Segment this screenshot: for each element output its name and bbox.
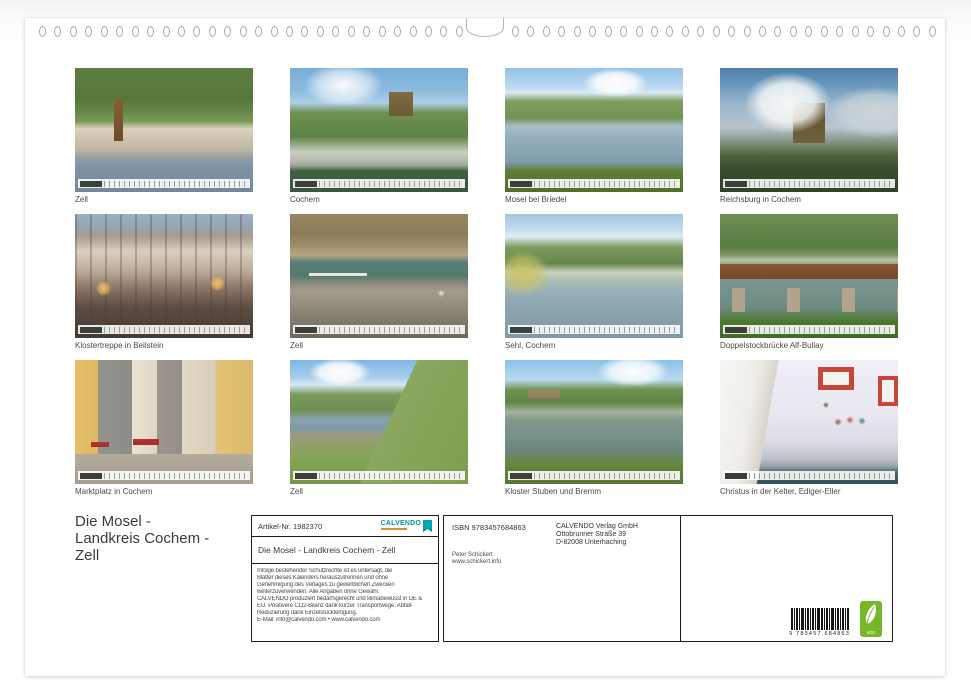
isbn-publisher-box: ISBN 9783457684863 CALVENDO Verlag GmbH … xyxy=(443,515,893,642)
thumbnail-zell-3: Zell xyxy=(290,360,468,506)
photo-sehl-river xyxy=(505,214,683,338)
binding-hole xyxy=(666,26,673,37)
binding-hole xyxy=(558,26,565,37)
binding-hole xyxy=(39,26,46,37)
binding-hole xyxy=(363,26,370,37)
thumbnail-bruecke: Doppelstockbrücke Alf-Bullay xyxy=(720,214,898,360)
photo-zell-aerial xyxy=(290,214,468,338)
binding-hole xyxy=(394,26,401,37)
mini-days-row xyxy=(749,181,893,187)
thumbnail-caption: Marktplatz in Cochem xyxy=(75,487,253,496)
mini-month-label xyxy=(510,473,532,479)
publisher-line: D-82008 Unterhaching xyxy=(556,539,638,547)
thumbnail-kelter: Christus in der Kelter, Ediger-Eller xyxy=(720,360,898,506)
calendar-title-row: Die Mosel - Landkreis Cochem - Zell xyxy=(252,537,438,564)
eco-leaf-icon xyxy=(862,603,880,629)
binding-hole xyxy=(147,26,154,37)
thumbnail-caption: Mosel bei Briedel xyxy=(505,195,683,204)
binding-hole xyxy=(456,26,463,37)
mini-days-row xyxy=(319,473,463,479)
binding-hole xyxy=(116,26,123,37)
publisher-line: CALVENDO Verlag GmbH xyxy=(556,523,638,531)
mini-calendar-strip xyxy=(723,325,895,334)
publisher-line: Ottobrunner Straße 39 xyxy=(556,531,638,539)
binding-hole xyxy=(163,26,170,37)
mini-days-row xyxy=(104,327,248,333)
legal-line: weiterzuverwenden. Alle Angaben ohne Gew… xyxy=(257,589,433,596)
binding-hole xyxy=(209,26,216,37)
thumbnail-cochem: Cochem xyxy=(290,68,468,214)
binding-hole xyxy=(132,26,139,37)
calendar-title-line: Die Mosel - xyxy=(75,513,250,530)
binding-hole xyxy=(317,26,324,37)
mini-days-row xyxy=(319,327,463,333)
eco-label: eco xyxy=(860,631,882,636)
mini-month-label xyxy=(295,327,317,333)
publisher-pane: ISBN 9783457684863 CALVENDO Verlag GmbH … xyxy=(444,516,681,641)
binding-hole xyxy=(512,26,519,37)
photo-river-reflection xyxy=(505,68,683,192)
mini-month-label xyxy=(510,327,532,333)
binding-hole xyxy=(636,26,643,37)
photographer-website: www.schickert.info xyxy=(452,559,501,566)
binding-hole xyxy=(883,26,890,37)
binding-hole xyxy=(651,26,658,37)
binding-hole xyxy=(178,26,185,37)
photo-reichsburg-clouds xyxy=(720,68,898,192)
photo-cochem-castle-town xyxy=(290,68,468,192)
binding-hole xyxy=(790,26,797,37)
mini-month-label xyxy=(80,181,102,187)
mini-calendar-strip xyxy=(293,471,465,480)
photo-double-deck-bridge xyxy=(720,214,898,338)
binding-hole xyxy=(852,26,859,37)
binding-hole xyxy=(527,26,534,37)
mini-month-label xyxy=(80,473,102,479)
mini-month-label xyxy=(295,181,317,187)
binding-hole xyxy=(744,26,751,37)
thumbnail-caption: Doppelstockbrücke Alf-Bullay xyxy=(720,341,898,350)
mini-calendar-strip xyxy=(723,179,895,188)
binding-hole xyxy=(286,26,293,37)
thumbnail-sehl: Sehl, Cochem xyxy=(505,214,683,360)
thumbnail-caption: Christus in der Kelter, Ediger-Eller xyxy=(720,487,898,496)
thumbnail-grid: Zell Cochem Mosel bei Briedel Reichsburg… xyxy=(75,68,898,506)
thumbnail-caption: Zell xyxy=(75,195,253,204)
binding-hole xyxy=(867,26,874,37)
thumbnail-briedel: Mosel bei Briedel xyxy=(505,68,683,214)
mini-calendar-strip xyxy=(508,179,680,188)
binding-hole xyxy=(728,26,735,37)
binding-hole xyxy=(821,26,828,37)
photo-zell-waterfront xyxy=(75,68,253,192)
binding-holes-left xyxy=(39,25,463,37)
thumbnail-caption: Klostertreppe in Beilstein xyxy=(75,341,253,350)
thumbnail-reichsburg: Reichsburg in Cochem xyxy=(720,68,898,214)
legal-line: Reduzierung dank Einzelstückfertigung. xyxy=(257,610,433,617)
mini-calendar-strip xyxy=(78,471,250,480)
barcode: 9 783457 684863 xyxy=(789,608,850,637)
photo-kloster-stuben xyxy=(505,360,683,484)
mini-month-label xyxy=(510,181,532,187)
legal-text: Infolge bestehender Schutzrechte ist es … xyxy=(252,564,438,624)
binding-hole xyxy=(240,26,247,37)
binding-hole xyxy=(913,26,920,37)
calendar-title-line: Landkreis Cochem - xyxy=(75,530,250,547)
photo-market-square xyxy=(75,360,253,484)
binding-hole xyxy=(224,26,231,37)
calendar-title-line: Zell xyxy=(75,547,250,564)
mini-days-row xyxy=(319,181,463,187)
legal-line: EU. Positivere CO2-Bilanz dank kurzer Tr… xyxy=(257,603,433,610)
photo-monastery-stairs-evening xyxy=(75,214,253,338)
mini-month-label xyxy=(295,473,317,479)
binding-hole xyxy=(85,26,92,37)
product-info-box: Artikel-Nr. 1982370 CALVENDO Die Mosel -… xyxy=(251,515,439,642)
thumbnail-caption: Zell xyxy=(290,487,468,496)
mini-calendar-strip xyxy=(508,325,680,334)
thumbnail-zell-1: Zell xyxy=(75,68,253,214)
mini-days-row xyxy=(104,181,248,187)
legal-line: E-Mail: info@calvendo.com • www.calvendo… xyxy=(257,617,433,624)
binding-hole xyxy=(425,26,432,37)
mini-days-row xyxy=(534,181,678,187)
legal-line: Genehmigung des Verlages zu gewerblichen… xyxy=(257,582,433,589)
article-number: Artikel-Nr. 1982370 xyxy=(258,522,322,531)
thumbnail-beilstein: Klostertreppe in Beilstein xyxy=(75,214,253,360)
binding-hole xyxy=(774,26,781,37)
mini-calendar-strip xyxy=(508,471,680,480)
legal-line: Blätter dieses Kalenders herauszutrennen… xyxy=(257,575,433,582)
binding-hole xyxy=(440,26,447,37)
calendar-back-page: Zell Cochem Mosel bei Briedel Reichsburg… xyxy=(25,18,945,676)
mini-calendar-strip xyxy=(723,471,895,480)
photographer-name: Peter Schickert xyxy=(452,552,501,559)
calvendo-logo: CALVENDO xyxy=(381,520,432,532)
binding-hole xyxy=(589,26,596,37)
binding-hole xyxy=(759,26,766,37)
barcode-number: 9 783457 684863 xyxy=(789,631,850,637)
mini-calendar-strip xyxy=(78,325,250,334)
binding-hole xyxy=(574,26,581,37)
binding-hole xyxy=(101,26,108,37)
article-row: Artikel-Nr. 1982370 CALVENDO xyxy=(252,516,438,537)
mini-days-row xyxy=(749,473,893,479)
binding-hole xyxy=(836,26,843,37)
binding-hole xyxy=(805,26,812,37)
binding-hole xyxy=(348,26,355,37)
mini-days-row xyxy=(534,327,678,333)
hanger-notch xyxy=(466,18,504,37)
mini-calendar-strip xyxy=(293,179,465,188)
thumbnail-caption: Zell xyxy=(290,341,468,350)
binding-hole xyxy=(379,26,386,37)
mini-month-label xyxy=(725,327,747,333)
thumbnail-caption: Reichsburg in Cochem xyxy=(720,195,898,204)
mini-days-row xyxy=(534,473,678,479)
thumbnail-marktplatz: Marktplatz in Cochem xyxy=(75,360,253,506)
binding-hole xyxy=(271,26,278,37)
calvendo-logo-text: CALVENDO xyxy=(381,520,421,527)
mini-days-row xyxy=(749,327,893,333)
isbn-number: ISBN 9783457684863 xyxy=(452,523,526,532)
binding-hole xyxy=(898,26,905,37)
barcode-bars xyxy=(791,608,849,630)
binding-hole xyxy=(697,26,704,37)
binding-hole xyxy=(255,26,262,37)
binding-hole xyxy=(70,26,77,37)
thumbnail-kloster-stuben: Kloster Stuben und Bremm xyxy=(505,360,683,506)
binding-hole xyxy=(543,26,550,37)
binding-holes-right xyxy=(512,25,936,37)
photo-altar-chapel xyxy=(720,360,898,484)
mini-month-label xyxy=(725,473,747,479)
binding-hole xyxy=(929,26,936,37)
thumbnail-caption: Kloster Stuben und Bremm xyxy=(505,487,683,496)
thumbnail-caption: Cochem xyxy=(290,195,468,204)
binding-hole xyxy=(332,26,339,37)
calvendo-logo-text-wrap: CALVENDO xyxy=(381,520,421,530)
calvendo-logo-tagline xyxy=(381,528,407,530)
photo-vineyard-valley xyxy=(290,360,468,484)
photographer-credit: Peter Schickert www.schickert.info xyxy=(452,552,501,566)
mini-calendar-strip xyxy=(293,325,465,334)
mini-days-row xyxy=(104,473,248,479)
thumbnail-zell-2: Zell xyxy=(290,214,468,360)
thumbnail-caption: Sehl, Cochem xyxy=(505,341,683,350)
binding-hole xyxy=(713,26,720,37)
binding-hole xyxy=(301,26,308,37)
binding-hole xyxy=(193,26,200,37)
legal-line: CALVENDO produziert bedarfsgerecht und k… xyxy=(257,596,433,603)
barcode-zone: 9 783457 684863 eco xyxy=(789,601,882,637)
eco-logo: eco xyxy=(860,601,882,637)
mini-month-label xyxy=(725,181,747,187)
mini-calendar-strip xyxy=(78,179,250,188)
legal-line: Infolge bestehender Schutzrechte ist es … xyxy=(257,568,433,575)
mini-month-label xyxy=(80,327,102,333)
binding-hole xyxy=(410,26,417,37)
binding-hole xyxy=(54,26,61,37)
publisher-address: CALVENDO Verlag GmbH Ottobrunner Straße … xyxy=(556,523,638,547)
calendar-title: Die Mosel - Landkreis Cochem - Zell xyxy=(75,513,250,564)
calvendo-pennant-icon xyxy=(423,520,432,532)
binding-hole xyxy=(605,26,612,37)
binding-hole xyxy=(620,26,627,37)
barcode-pane: 9 783457 684863 eco xyxy=(681,516,892,641)
binding-hole xyxy=(682,26,689,37)
